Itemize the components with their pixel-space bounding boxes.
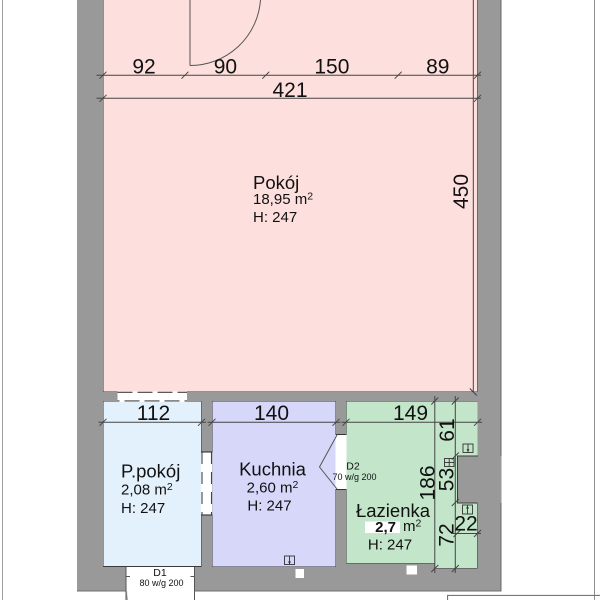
svg-text:D1: D1 (153, 567, 167, 579)
svg-text:H: 247: H: 247 (121, 500, 165, 517)
svg-text:89: 89 (426, 56, 449, 79)
svg-text:80 w/g 200: 80 w/g 200 (139, 578, 183, 588)
svg-text:D2: D2 (346, 461, 360, 473)
svg-text:90: 90 (214, 56, 237, 79)
svg-text:53: 53 (436, 468, 459, 491)
svg-text:H: 247: H: 247 (247, 498, 291, 515)
svg-text:22: 22 (454, 513, 477, 536)
svg-text:2,60 m2: 2,60 m2 (247, 479, 299, 497)
svg-text:112: 112 (137, 402, 170, 425)
svg-text:P.pokój: P.pokój (121, 461, 180, 482)
svg-text:Pokój: Pokój (253, 172, 299, 193)
svg-text:61: 61 (436, 418, 459, 441)
svg-text:18,95 m2: 18,95 m2 (253, 191, 313, 209)
svg-text:150: 150 (314, 56, 349, 79)
svg-text:H: 247: H: 247 (368, 537, 412, 554)
svg-text:149: 149 (393, 402, 428, 425)
svg-text:2,08 m2: 2,08 m2 (121, 481, 173, 499)
svg-text:92: 92 (132, 56, 155, 79)
svg-text:421: 421 (272, 79, 307, 102)
svg-text:70 w/g 200: 70 w/g 200 (332, 472, 376, 482)
svg-text:2,7: 2,7 (375, 519, 396, 536)
svg-text:140: 140 (254, 402, 289, 425)
svg-text:H: 247: H: 247 (253, 209, 297, 226)
svg-text:450: 450 (450, 174, 473, 209)
svg-text:Kuchnia: Kuchnia (239, 459, 307, 480)
